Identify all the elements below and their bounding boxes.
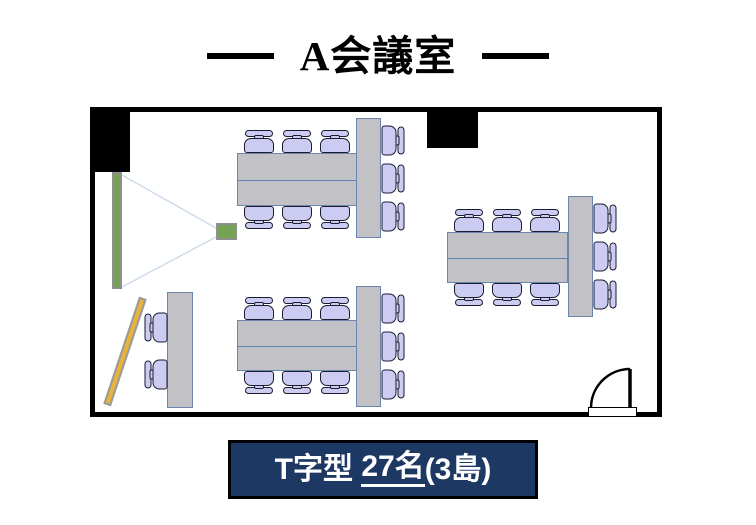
- chair: [593, 240, 616, 272]
- chair: [281, 371, 313, 394]
- chair-seat: [454, 217, 484, 232]
- title-dash-left: [207, 53, 274, 59]
- chair: [453, 283, 485, 306]
- chair: [319, 371, 351, 394]
- chair: [243, 297, 275, 320]
- chair-seat: [492, 283, 522, 298]
- chair: [243, 206, 275, 229]
- chair: [381, 292, 404, 324]
- island-count-text: (3島): [425, 455, 492, 485]
- chair: [593, 202, 616, 234]
- chair-seat: [381, 293, 396, 323]
- layout-type-text: T字型: [275, 455, 362, 485]
- presenter-table: [167, 292, 193, 408]
- floorplan-canvas: A会議室 T字型 27名(3島): [0, 0, 756, 525]
- chair-seat: [593, 203, 608, 233]
- meeting-table: [447, 232, 568, 283]
- chair: [243, 371, 275, 394]
- chair-seat: [244, 371, 274, 386]
- chair: [529, 209, 561, 232]
- chair-seat: [320, 138, 350, 153]
- page-title: A会議室: [300, 36, 457, 77]
- chair: [381, 330, 404, 362]
- chair-seat: [244, 206, 274, 221]
- chair: [491, 209, 523, 232]
- meeting-table-end: [356, 286, 381, 407]
- chair: [243, 130, 275, 153]
- meeting-table-end: [356, 118, 381, 238]
- capacity-label: T字型 27名(3島): [228, 440, 538, 499]
- chair: [281, 130, 313, 153]
- meeting-table-end: [568, 196, 593, 317]
- table-divider: [237, 346, 357, 347]
- chair-seat: [381, 163, 396, 193]
- chair: [144, 311, 167, 343]
- chair-seat: [381, 201, 396, 231]
- chair-seat: [282, 371, 312, 386]
- capacity-count: 27名: [361, 452, 424, 487]
- chair-seat: [530, 217, 560, 232]
- chair: [593, 278, 616, 310]
- chair-seat: [381, 125, 396, 155]
- projector-screen: [112, 172, 122, 289]
- chair: [381, 162, 404, 194]
- chair-seat: [152, 312, 167, 342]
- chair: [453, 209, 485, 232]
- title-dash-right: [482, 53, 549, 59]
- chair-seat: [530, 283, 560, 298]
- chair-seat: [492, 217, 522, 232]
- chair: [381, 368, 404, 400]
- chair: [281, 297, 313, 320]
- chair: [319, 130, 351, 153]
- table-divider: [447, 258, 568, 259]
- chair-seat: [381, 369, 396, 399]
- chair-seat: [320, 371, 350, 386]
- chair-seat: [320, 305, 350, 320]
- chair-seat: [282, 206, 312, 221]
- chair-seat: [320, 206, 350, 221]
- chair-seat: [381, 331, 396, 361]
- chair-seat: [282, 305, 312, 320]
- chair-seat: [454, 283, 484, 298]
- chair: [144, 358, 167, 390]
- chair-seat: [593, 241, 608, 271]
- chair: [319, 206, 351, 229]
- chair: [381, 200, 404, 232]
- title-row: A会議室: [0, 30, 756, 82]
- chair-seat: [593, 279, 608, 309]
- chair: [529, 283, 561, 306]
- projector: [216, 223, 237, 240]
- chair: [381, 124, 404, 156]
- wall-pillar: [427, 111, 478, 148]
- chair: [281, 206, 313, 229]
- chair-seat: [152, 359, 167, 389]
- chair: [319, 297, 351, 320]
- chair-seat: [244, 138, 274, 153]
- wall-pillar: [93, 110, 130, 172]
- door-threshold: [588, 407, 637, 417]
- table-divider: [237, 180, 357, 181]
- chair: [491, 283, 523, 306]
- chair-seat: [244, 305, 274, 320]
- meeting-table: [237, 320, 357, 371]
- meeting-table: [237, 153, 357, 206]
- chair-seat: [282, 138, 312, 153]
